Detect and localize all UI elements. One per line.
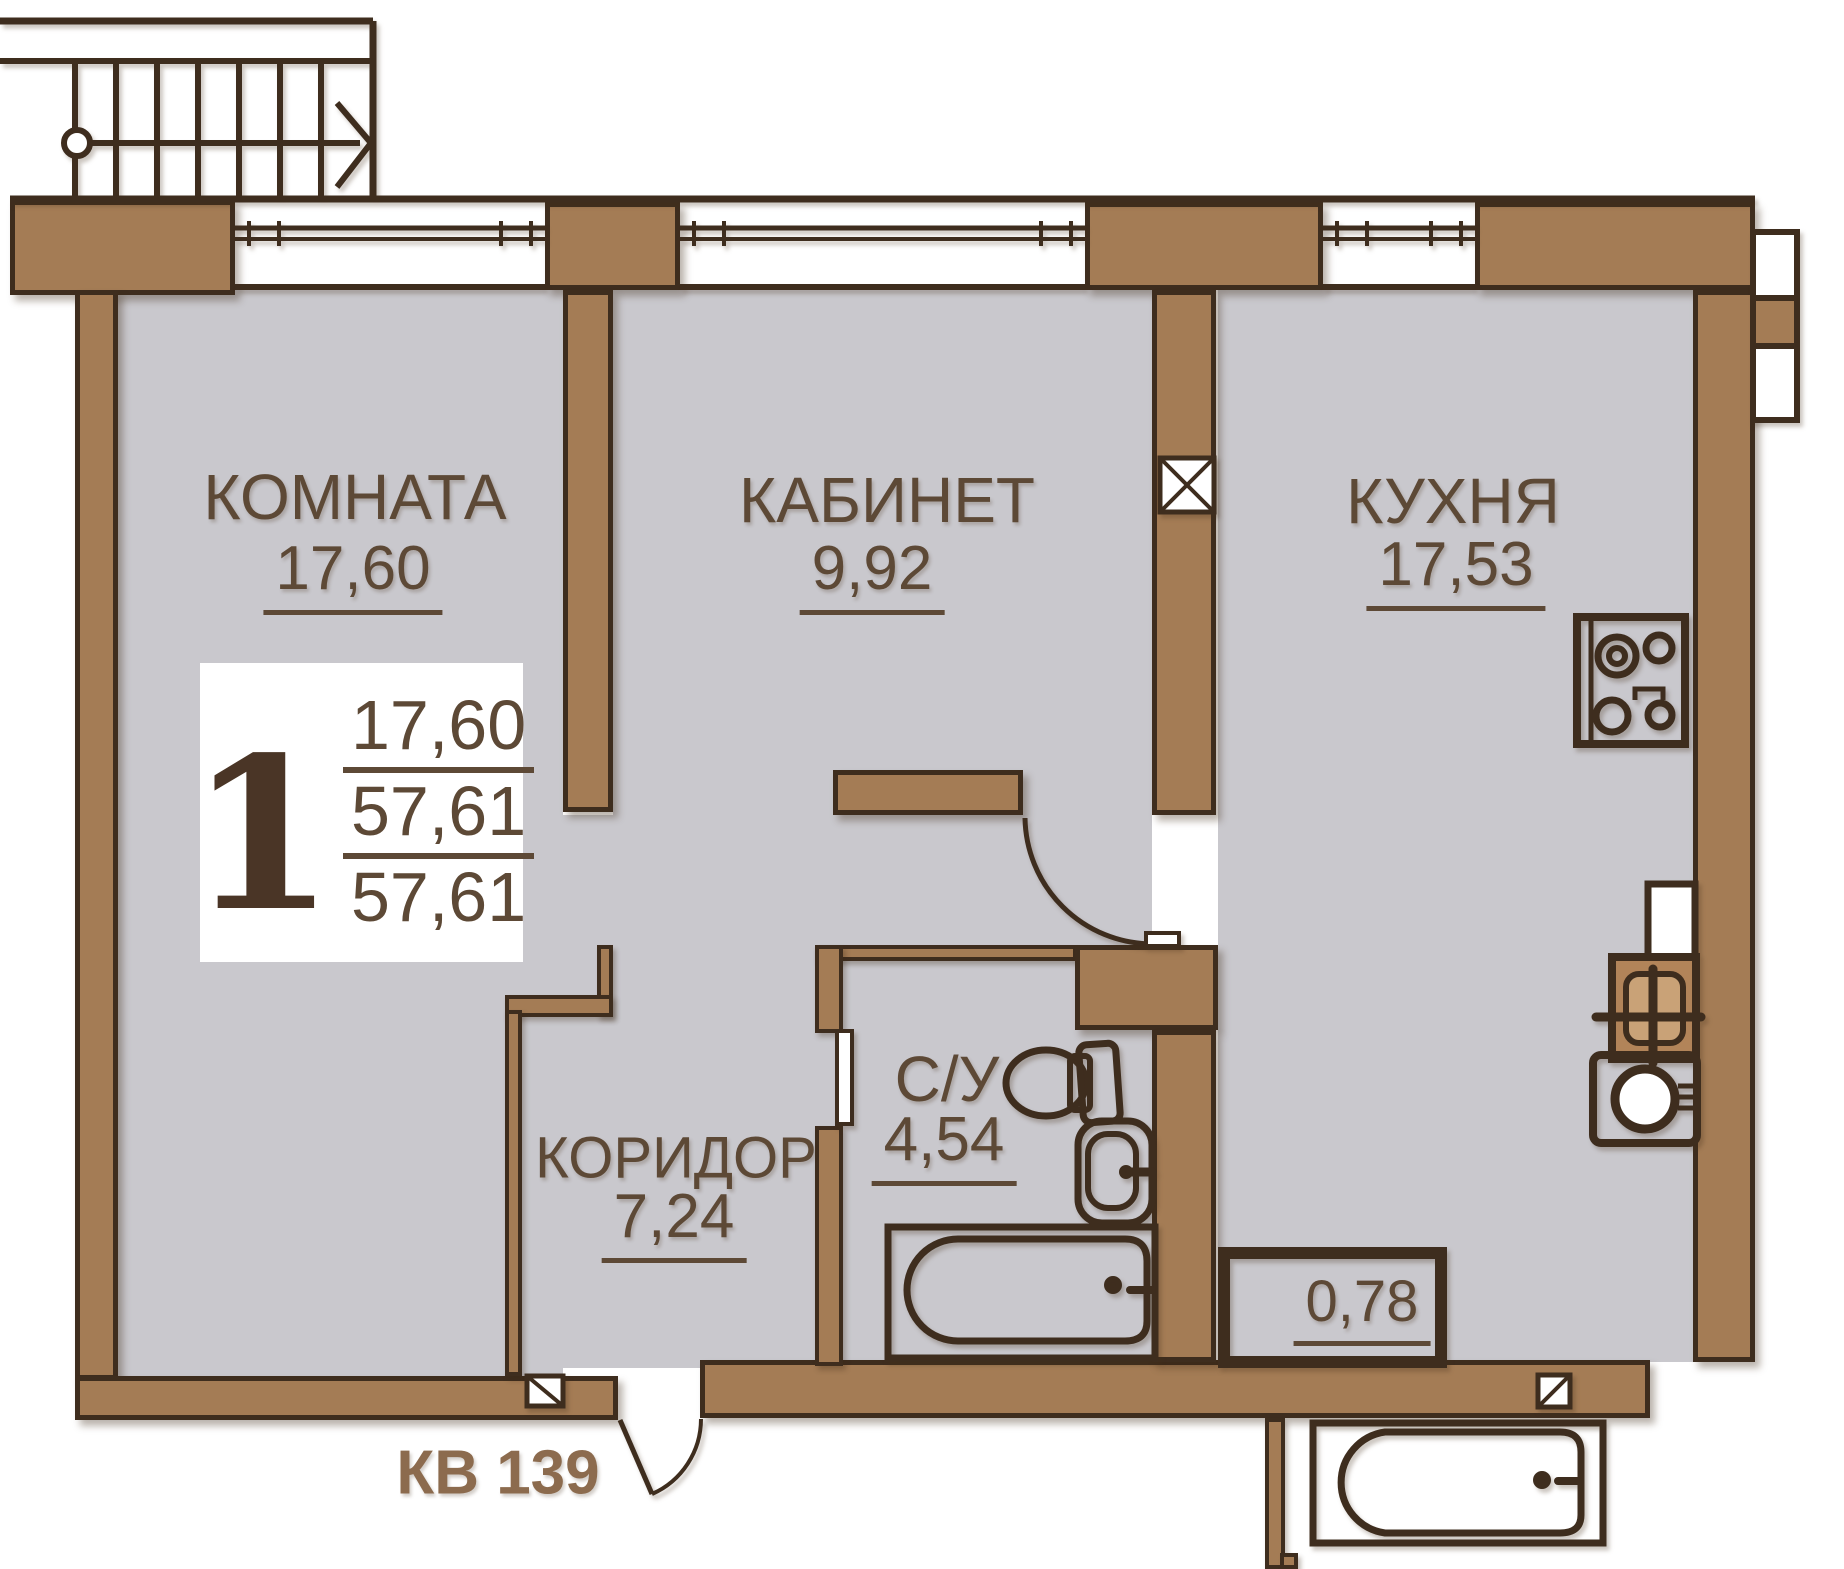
area-komnata: 17,60 xyxy=(263,533,442,615)
kabinet-door-arc xyxy=(1025,818,1179,946)
area-kabinet: 9,92 xyxy=(800,533,945,615)
label-komnata: КОМНАТА xyxy=(203,460,506,534)
su-door-leaf xyxy=(837,1031,852,1124)
threshold-icon-right xyxy=(1538,1375,1570,1407)
unit-number-label: КВ 139 xyxy=(396,1438,599,1509)
bathtub-icon xyxy=(888,1227,1155,1358)
area-su: 4,54 xyxy=(872,1104,1017,1186)
area-balcony: 0,78 xyxy=(1294,1268,1431,1346)
area-koridor: 7,24 xyxy=(602,1181,747,1263)
kitchen-counter xyxy=(1648,884,1695,960)
threshold-icon-entrance xyxy=(527,1376,563,1406)
facade-detail xyxy=(1753,232,1797,420)
label-kabinet: КАБИНЕТ xyxy=(739,463,1035,537)
toilet-icon xyxy=(1006,1043,1121,1123)
area-kuhnya: 17,53 xyxy=(1366,529,1545,611)
plan-linework xyxy=(0,0,1844,1569)
window-glazing xyxy=(235,221,1475,287)
floor-plan: 1 17,60 57,61 57,61 xyxy=(0,0,1844,1569)
neighbor-bathtub-icon xyxy=(1313,1423,1603,1543)
vent-shaft-icon xyxy=(1160,458,1214,512)
washing-machine-icon xyxy=(1593,1055,1697,1143)
entrance-door-arc xyxy=(620,1419,701,1494)
bathroom-sink-icon xyxy=(1078,1121,1152,1223)
stove-icon xyxy=(1577,617,1685,744)
label-kuhnya: КУХНЯ xyxy=(1346,464,1560,538)
kitchen-sink-icon xyxy=(1596,957,1701,1063)
staircase-icon xyxy=(0,21,373,199)
